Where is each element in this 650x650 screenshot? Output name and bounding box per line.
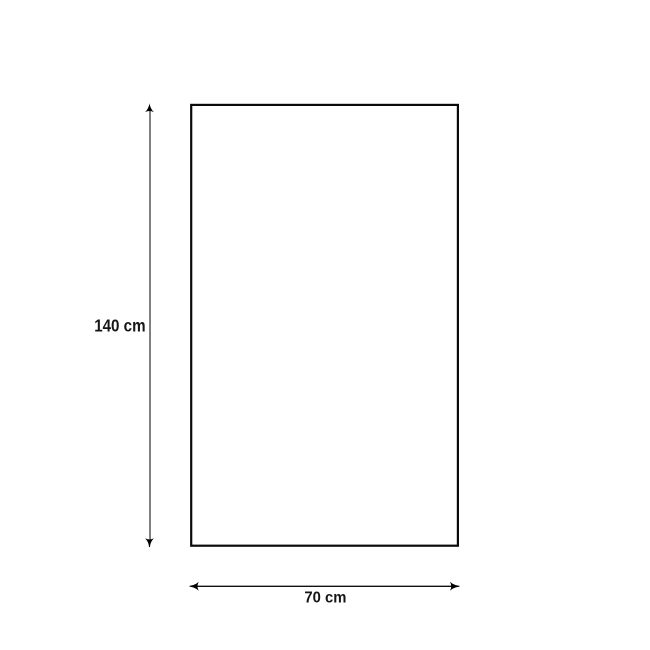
svg-text:140 cm: 140 cm [94,316,145,336]
svg-text:70 cm: 70 cm [304,590,346,607]
